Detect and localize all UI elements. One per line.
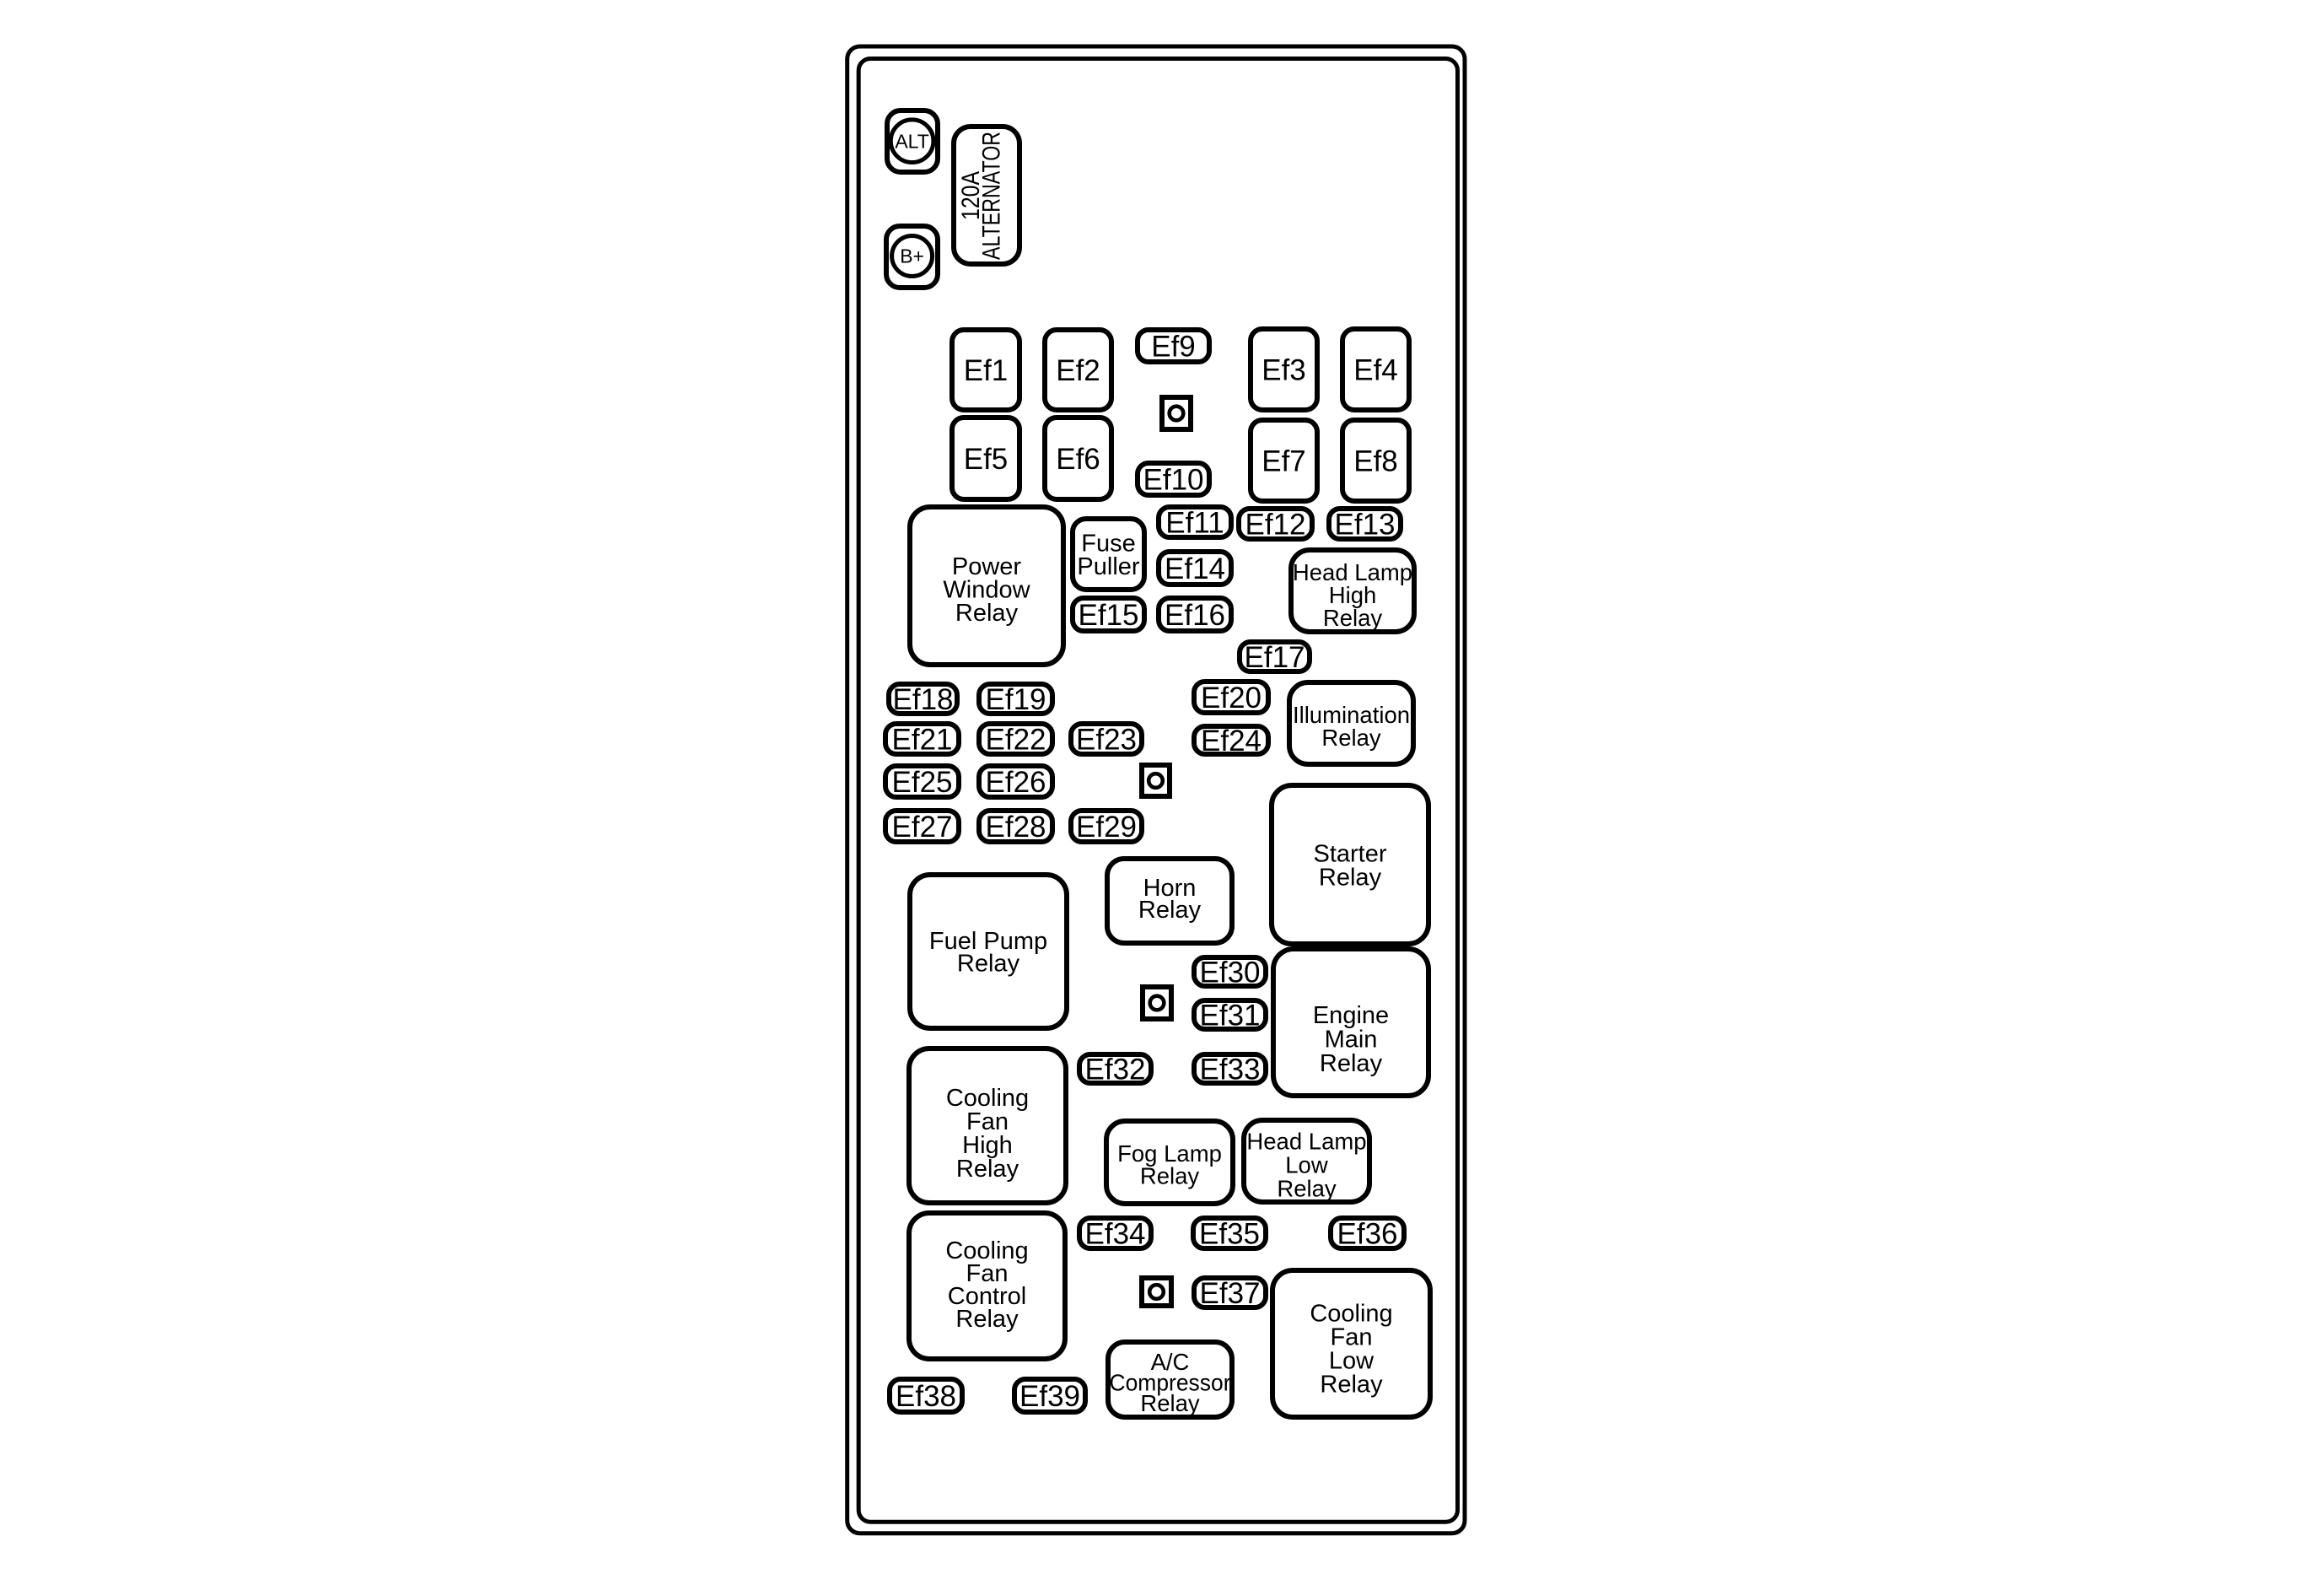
svg-text:Puller: Puller: [1077, 553, 1139, 580]
svg-text:Ef17: Ef17: [1245, 641, 1305, 674]
svg-text:ALT: ALT: [895, 130, 928, 152]
svg-text:Relay: Relay: [955, 600, 1019, 627]
svg-text:Relay: Relay: [1138, 897, 1202, 924]
svg-text:Ef29: Ef29: [1076, 811, 1137, 844]
svg-text:Ef7: Ef7: [1262, 445, 1306, 478]
svg-text:Ef4: Ef4: [1353, 354, 1398, 387]
svg-text:Ef3: Ef3: [1262, 354, 1306, 387]
svg-text:Ef28: Ef28: [986, 811, 1046, 844]
svg-text:ALTERNATOR: ALTERNATOR: [978, 132, 1006, 260]
svg-text:Ef36: Ef36: [1337, 1218, 1398, 1251]
svg-text:Ef37: Ef37: [1200, 1277, 1261, 1310]
svg-text:Low: Low: [1285, 1151, 1328, 1178]
svg-text:Ef14: Ef14: [1165, 553, 1225, 585]
svg-text:Ef8: Ef8: [1353, 445, 1398, 478]
svg-text:Ef30: Ef30: [1200, 957, 1261, 989]
svg-text:Relay: Relay: [956, 1156, 1019, 1183]
svg-text:Relay: Relay: [1321, 725, 1381, 751]
svg-text:Ef35: Ef35: [1199, 1218, 1260, 1251]
svg-text:Ef27: Ef27: [892, 811, 953, 844]
svg-text:Engine: Engine: [1313, 1002, 1389, 1029]
svg-text:Ef15: Ef15: [1079, 599, 1139, 632]
svg-text:Main: Main: [1325, 1026, 1378, 1053]
svg-text:Ef18: Ef18: [893, 683, 954, 716]
svg-text:Relay: Relay: [1323, 605, 1383, 631]
svg-text:Ef9: Ef9: [1151, 331, 1196, 364]
svg-text:Ef32: Ef32: [1085, 1054, 1146, 1086]
svg-text:Ef33: Ef33: [1200, 1054, 1261, 1086]
svg-text:B+: B+: [900, 245, 924, 267]
svg-text:Ef13: Ef13: [1335, 509, 1396, 542]
svg-text:Ef6: Ef6: [1056, 443, 1100, 476]
svg-text:Ef26: Ef26: [986, 766, 1046, 799]
svg-text:Ef19: Ef19: [986, 683, 1046, 716]
svg-text:Ef34: Ef34: [1085, 1218, 1146, 1251]
svg-text:Ef10: Ef10: [1143, 464, 1204, 497]
svg-text:Ef12: Ef12: [1245, 509, 1306, 542]
svg-text:Relay: Relay: [1320, 1371, 1383, 1398]
svg-text:Ef22: Ef22: [986, 724, 1046, 757]
svg-text:Relay: Relay: [1319, 864, 1382, 891]
svg-text:Ef5: Ef5: [964, 443, 1009, 476]
svg-text:Ef39: Ef39: [1019, 1380, 1080, 1413]
svg-text:Relay: Relay: [1140, 1163, 1200, 1189]
svg-text:Ef16: Ef16: [1165, 599, 1225, 632]
svg-text:Ef20: Ef20: [1201, 682, 1262, 714]
svg-text:Ef31: Ef31: [1200, 1000, 1261, 1032]
svg-text:Ef24: Ef24: [1201, 725, 1262, 757]
svg-text:Ef38: Ef38: [896, 1380, 956, 1413]
svg-text:Ef2: Ef2: [1056, 354, 1100, 387]
svg-text:Relay: Relay: [955, 1306, 1019, 1333]
svg-text:Relay: Relay: [1140, 1390, 1200, 1416]
svg-text:Ef23: Ef23: [1076, 724, 1137, 757]
svg-text:Ef21: Ef21: [892, 724, 953, 757]
svg-text:Relay: Relay: [1320, 1050, 1383, 1077]
svg-text:Ef1: Ef1: [964, 354, 1009, 387]
svg-text:Relay: Relay: [957, 951, 1020, 978]
svg-text:Head Lamp: Head Lamp: [1246, 1128, 1366, 1154]
svg-text:Relay: Relay: [1277, 1175, 1337, 1201]
svg-text:Ef25: Ef25: [892, 766, 953, 799]
svg-text:Ef11: Ef11: [1165, 507, 1224, 540]
